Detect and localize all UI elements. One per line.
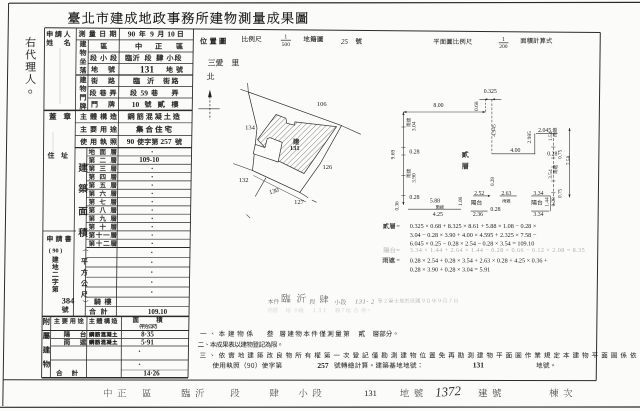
svg-text:109-10: 109-10: [139, 156, 159, 164]
svg-text:257: 257: [317, 361, 329, 370]
svg-text:0.28 × 2.54 + 0.28 × 3.54 + 2.: 0.28 × 2.54 + 0.28 × 3.54 + 2.63 × 0.28 …: [410, 257, 548, 264]
svg-text:9.69: 9.69: [391, 149, 397, 159]
svg-text:8.00: 8.00: [433, 103, 443, 109]
svg-text:3.34: 3.34: [533, 191, 543, 197]
svg-text:0.28: 0.28: [551, 197, 557, 206]
svg-text:4.945: 4.945: [492, 124, 498, 137]
svg-text:0.75: 0.75: [557, 149, 563, 158]
svg-text:90: 90: [127, 137, 135, 146]
svg-text:131- 2: 131- 2: [355, 298, 375, 305]
svg-text:3.90: 3.90: [412, 173, 418, 183]
svg-text:106: 106: [317, 101, 328, 108]
svg-text:131: 131: [290, 145, 300, 152]
svg-text:2.985: 2.985: [527, 131, 533, 144]
svg-text:0.325 × 0.68 + 8.325 × 8.61 +: 0.325 × 0.68 + 8.325 × 8.61 + 5.88 × 1.0…: [410, 223, 537, 230]
svg-text:14·26: 14·26: [143, 370, 160, 378]
svg-text:2.36: 2.36: [473, 212, 483, 218]
svg-text:( 90 ): ( 90 ): [49, 247, 62, 254]
svg-text:1372: 1372: [435, 383, 462, 400]
svg-text:9: 9: [150, 29, 154, 38]
svg-text:1.44: 1.44: [545, 197, 551, 207]
svg-text:0.36: 0.36: [394, 201, 400, 210]
svg-text:1: 1: [502, 37, 505, 43]
svg-text:=: =: [396, 258, 400, 265]
svg-text:0.28: 0.28: [409, 149, 419, 155]
svg-text:131: 131: [364, 388, 377, 398]
svg-text:200: 200: [499, 44, 508, 50]
svg-text:10: 10: [132, 100, 140, 109]
svg-text:3.54: 3.54: [548, 169, 554, 179]
svg-text:131: 131: [473, 361, 485, 370]
svg-text:257: 257: [160, 137, 172, 146]
svg-text:5·91: 5·91: [141, 339, 154, 347]
svg-text:0.28: 0.28: [490, 177, 496, 186]
svg-text:3.04: 3.04: [412, 121, 418, 131]
svg-text:131: 131: [140, 65, 155, 75]
svg-text:3.34 × 1.44 + 2.64 × 1.44 − 0.: 3.34 × 1.44 + 2.64 × 1.44 − 0.28 × 0.66 …: [410, 247, 585, 254]
svg-text:0.68: 0.68: [474, 101, 480, 111]
svg-text:59: 59: [141, 88, 149, 97]
svg-text:0.28 × 3.90 + 0.28 × 3.04 = 5.: 0.28 × 3.90 + 0.28 × 3.04 = 5.91: [410, 267, 490, 274]
svg-text:0.28: 0.28: [490, 207, 500, 213]
svg-text:134: 134: [245, 124, 256, 131]
svg-text:109.10: 109.10: [148, 308, 168, 316]
svg-text:2.52: 2.52: [474, 191, 484, 197]
svg-text:8·35: 8·35: [141, 331, 154, 339]
svg-text:=: =: [396, 223, 400, 230]
svg-text:500: 500: [282, 42, 291, 48]
svg-text:1: 1: [284, 34, 287, 40]
svg-text:132: 132: [239, 177, 249, 184]
svg-text:4.25: 4.25: [433, 212, 443, 218]
svg-text:0.325: 0.325: [484, 89, 497, 95]
svg-text:3.04 − 0.28 × 3.90 + 4.00 × 4.: 3.04 − 0.28 × 3.90 + 4.00 × 4.595 + 2.32…: [410, 232, 537, 239]
svg-text:7.58: 7.58: [566, 155, 572, 165]
svg-text:0.28: 0.28: [547, 151, 557, 157]
svg-text:5.88: 5.88: [430, 199, 440, 205]
svg-text:0.75: 0.75: [557, 188, 563, 197]
svg-text:4.00: 4.00: [510, 148, 520, 154]
svg-text:10: 10: [167, 29, 175, 38]
svg-text:=: =: [396, 247, 400, 254]
svg-text:0.28: 0.28: [409, 195, 419, 201]
svg-text:25: 25: [341, 38, 349, 46]
svg-text:126: 126: [323, 164, 334, 171]
svg-text:3.34: 3.34: [533, 212, 543, 218]
svg-text:384: 384: [62, 296, 76, 306]
svg-text:127: 127: [294, 199, 305, 206]
svg-text:2.63: 2.63: [501, 191, 511, 197]
svg-text:90: 90: [128, 29, 136, 38]
svg-text:1.08: 1.08: [458, 196, 464, 205]
